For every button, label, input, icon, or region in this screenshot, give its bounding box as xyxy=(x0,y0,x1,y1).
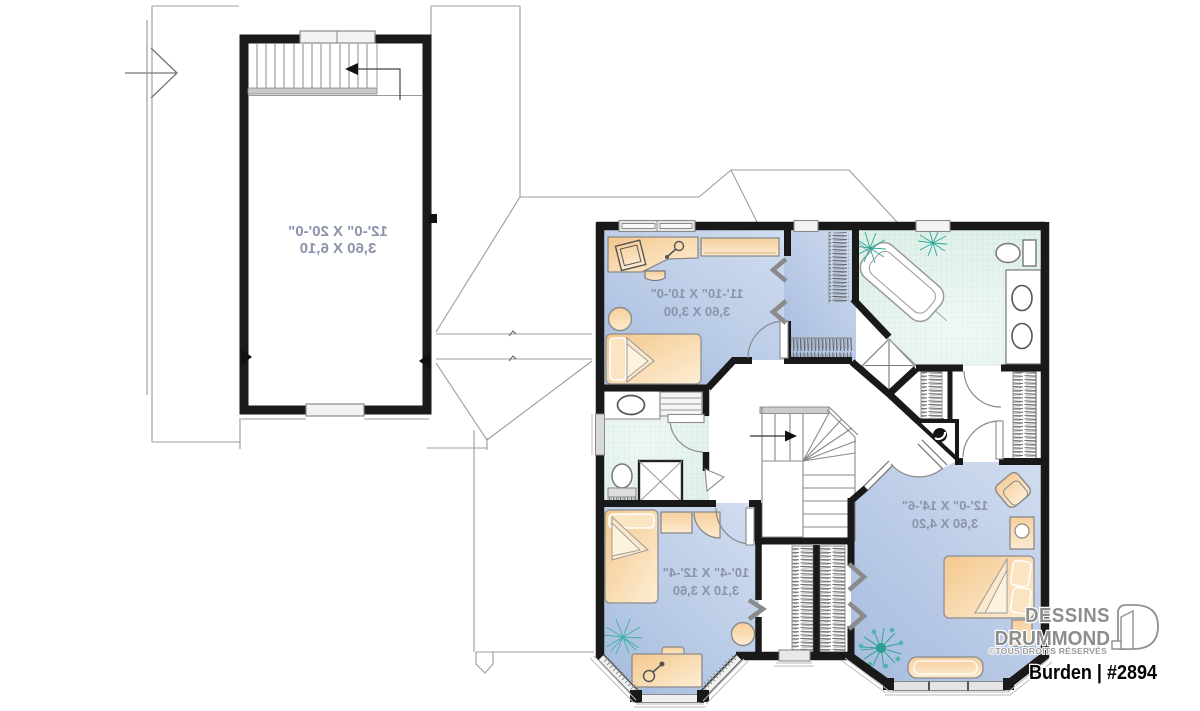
svg-text:DESSINS: DESSINS xyxy=(1025,605,1110,627)
svg-text:3,10 X 3,60: 3,10 X 3,60 xyxy=(673,583,740,598)
svg-text:12'-0" X 14'-6": 12'-0" X 14'-6" xyxy=(902,498,988,513)
svg-text:3,60 X 6,10: 3,60 X 6,10 xyxy=(300,240,377,257)
svg-text:3,60 X 3,00: 3,60 X 3,00 xyxy=(664,304,731,319)
svg-text:Burden | #2894: Burden | #2894 xyxy=(1029,662,1157,684)
svg-text:3,60 X 4,20: 3,60 X 4,20 xyxy=(912,516,979,531)
svg-text:12'-0" X 20'-0": 12'-0" X 20'-0" xyxy=(288,223,388,240)
svg-text:10'-4" X 12'-4": 10'-4" X 12'-4" xyxy=(663,565,749,580)
svg-text:11'-10" X 10'-0": 11'-10" X 10'-0" xyxy=(651,286,744,301)
svg-text:©TOUS DROITS RÉSERVÉS: ©TOUS DROITS RÉSERVÉS xyxy=(989,646,1107,656)
